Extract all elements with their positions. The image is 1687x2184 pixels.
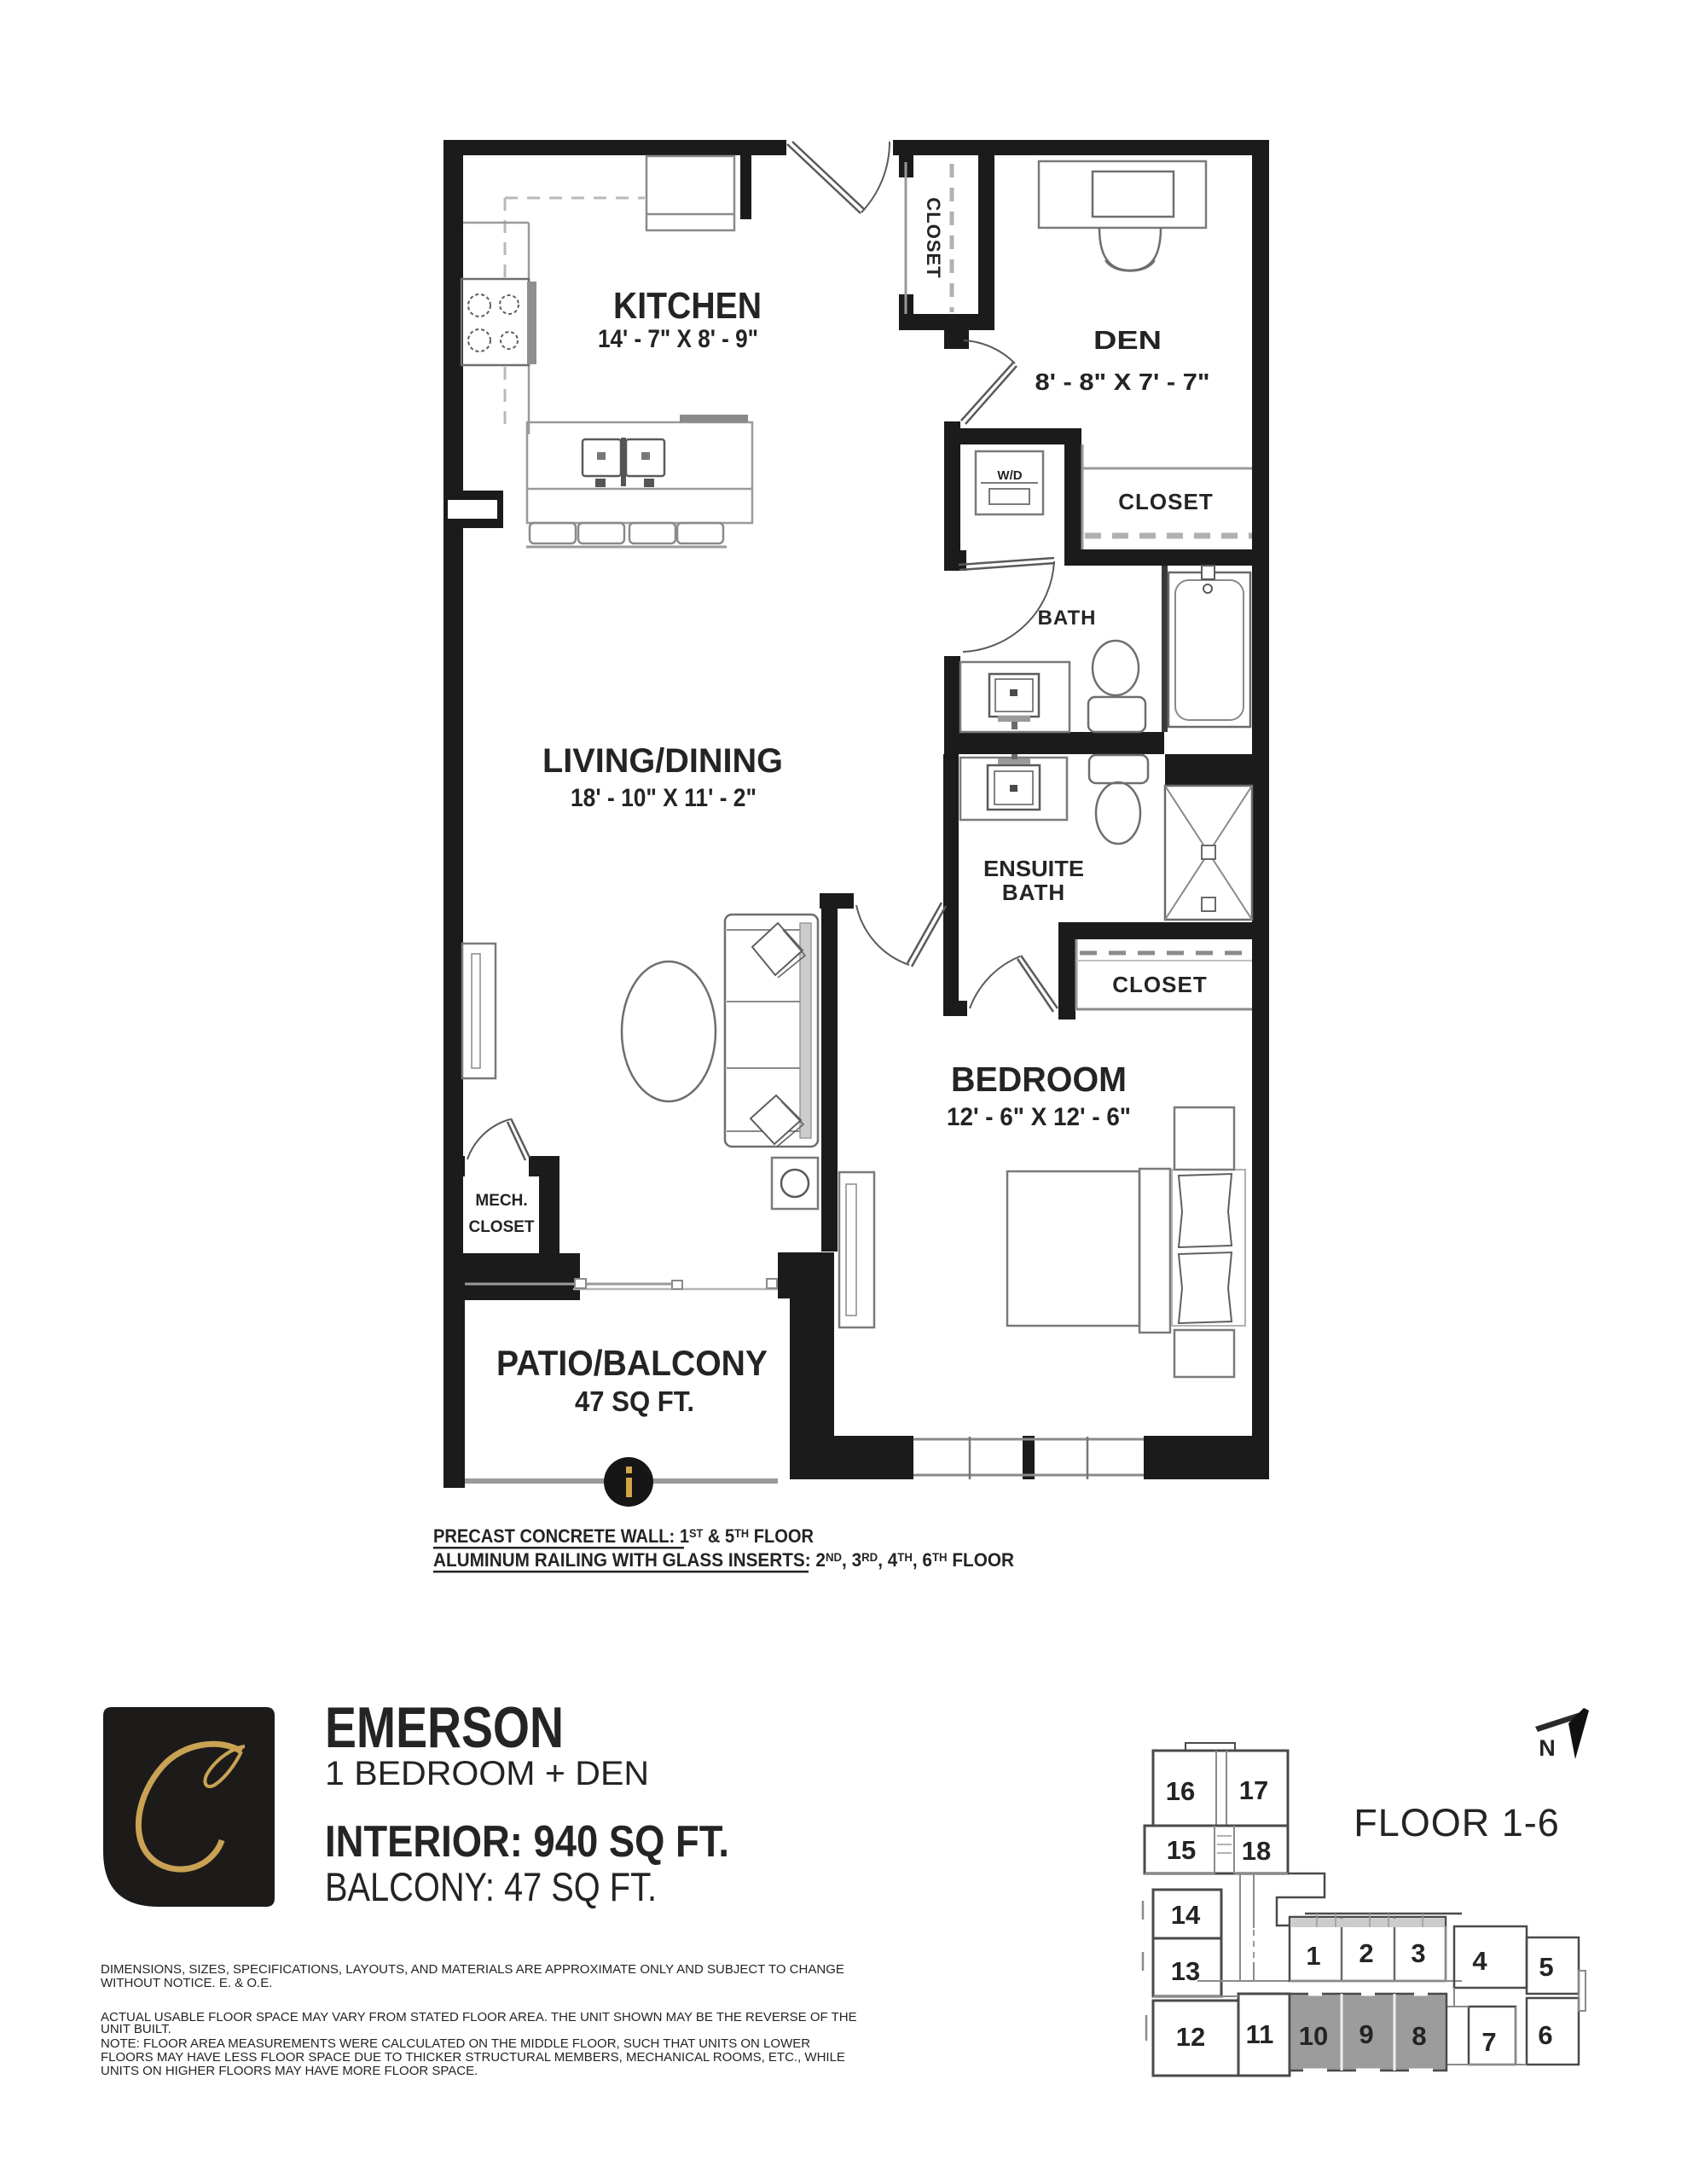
svg-text:LIVING/DINING: LIVING/DINING <box>542 742 783 780</box>
svg-text:14: 14 <box>1171 1900 1201 1930</box>
svg-text:14' - 7" X 8' - 9": 14' - 7" X 8' - 9" <box>598 325 758 353</box>
svg-text:2: 2 <box>1359 1938 1373 1968</box>
svg-text:W/D: W/D <box>997 468 1022 483</box>
svg-text:EMERSON: EMERSON <box>325 1695 564 1760</box>
svg-text:10: 10 <box>1299 2021 1328 2051</box>
svg-text:CLOSET: CLOSET <box>1118 489 1213 514</box>
svg-text:INTERIOR: 940 SQ FT.: INTERIOR: 940 SQ FT. <box>325 1817 729 1867</box>
svg-text:7: 7 <box>1481 2027 1496 2057</box>
svg-text:ENSUITE: ENSUITE <box>983 856 1084 881</box>
svg-text:12: 12 <box>1176 2022 1205 2052</box>
svg-text:WITHOUT NOTICE. E. & O.E.: WITHOUT NOTICE. E. & O.E. <box>101 1976 272 1990</box>
svg-text:BATH: BATH <box>1002 880 1065 905</box>
svg-text:3: 3 <box>1411 1938 1425 1968</box>
svg-text:PATIO/BALCONY: PATIO/BALCONY <box>496 1343 768 1383</box>
svg-text:N: N <box>1539 1735 1556 1761</box>
svg-text:9: 9 <box>1359 2019 1373 2049</box>
svg-text:11: 11 <box>1246 2019 1274 2049</box>
svg-text:FLOORS MAY HAVE LESS FLOOR SPA: FLOORS MAY HAVE LESS FLOOR SPACE DUE TO … <box>101 2050 845 2065</box>
svg-text:CLOSET: CLOSET <box>468 1218 534 1236</box>
svg-text:4: 4 <box>1472 1946 1487 1976</box>
svg-text:1 BEDROOM + DEN: 1 BEDROOM + DEN <box>325 1755 649 1792</box>
svg-text:DEN: DEN <box>1093 325 1162 355</box>
svg-text:16: 16 <box>1166 1776 1195 1806</box>
svg-text:12' - 6" X 12' - 6": 12' - 6" X 12' - 6" <box>947 1103 1131 1131</box>
svg-text:MECH.: MECH. <box>475 1192 527 1210</box>
svg-text:BATH: BATH <box>1038 607 1097 630</box>
svg-text:DIMENSIONS, SIZES, SPECIFICATI: DIMENSIONS, SIZES, SPECIFICATIONS, LAYOU… <box>101 1962 844 1977</box>
svg-text:ACTUAL USABLE FLOOR SPACE MAY: ACTUAL USABLE FLOOR SPACE MAY VARY FROM … <box>101 2010 857 2024</box>
svg-text:18' - 10" X 11' - 2": 18' - 10" X 11' - 2" <box>571 784 757 812</box>
svg-text:18: 18 <box>1242 1836 1271 1866</box>
svg-text:UNITS ON HIGHER FLOORS MAY HAV: UNITS ON HIGHER FLOORS MAY HAVE MORE FLO… <box>101 2064 478 2078</box>
svg-text:FLOOR 1-6: FLOOR 1-6 <box>1354 1801 1560 1844</box>
svg-text:17: 17 <box>1239 1775 1268 1805</box>
svg-text:8' - 8" X 7' - 7": 8' - 8" X 7' - 7" <box>1035 369 1210 395</box>
svg-text:KITCHEN: KITCHEN <box>613 285 762 327</box>
svg-text:BALCONY: 47 SQ FT.: BALCONY: 47 SQ FT. <box>325 1864 657 1909</box>
svg-text:CLOSET: CLOSET <box>1112 972 1207 997</box>
svg-text:1: 1 <box>1306 1941 1320 1971</box>
svg-text:8: 8 <box>1412 2021 1426 2051</box>
svg-text:ALUMINUM RAILING WITH GLASS IN: ALUMINUM RAILING WITH GLASS INSERTS: 2ND… <box>433 1549 1014 1571</box>
svg-text:15: 15 <box>1167 1835 1196 1865</box>
svg-text:CLOSET: CLOSET <box>923 197 944 278</box>
svg-text:PRECAST CONCRETE WALL: 1ST & 5: PRECAST CONCRETE WALL: 1ST & 5TH FLOOR <box>433 1525 814 1547</box>
svg-text:NOTE: FLOOR AREA MEASUREMENTS: NOTE: FLOOR AREA MEASUREMENTS WERE CALCU… <box>101 2036 810 2051</box>
svg-text:13: 13 <box>1171 1956 1200 1986</box>
svg-text:47 SQ FT.: 47 SQ FT. <box>575 1385 694 1417</box>
svg-text:UNIT BUILT.: UNIT BUILT. <box>101 2022 171 2036</box>
svg-text:5: 5 <box>1539 1952 1553 1982</box>
svg-text:6: 6 <box>1538 2020 1552 2050</box>
svg-text:BEDROOM: BEDROOM <box>951 1060 1127 1099</box>
